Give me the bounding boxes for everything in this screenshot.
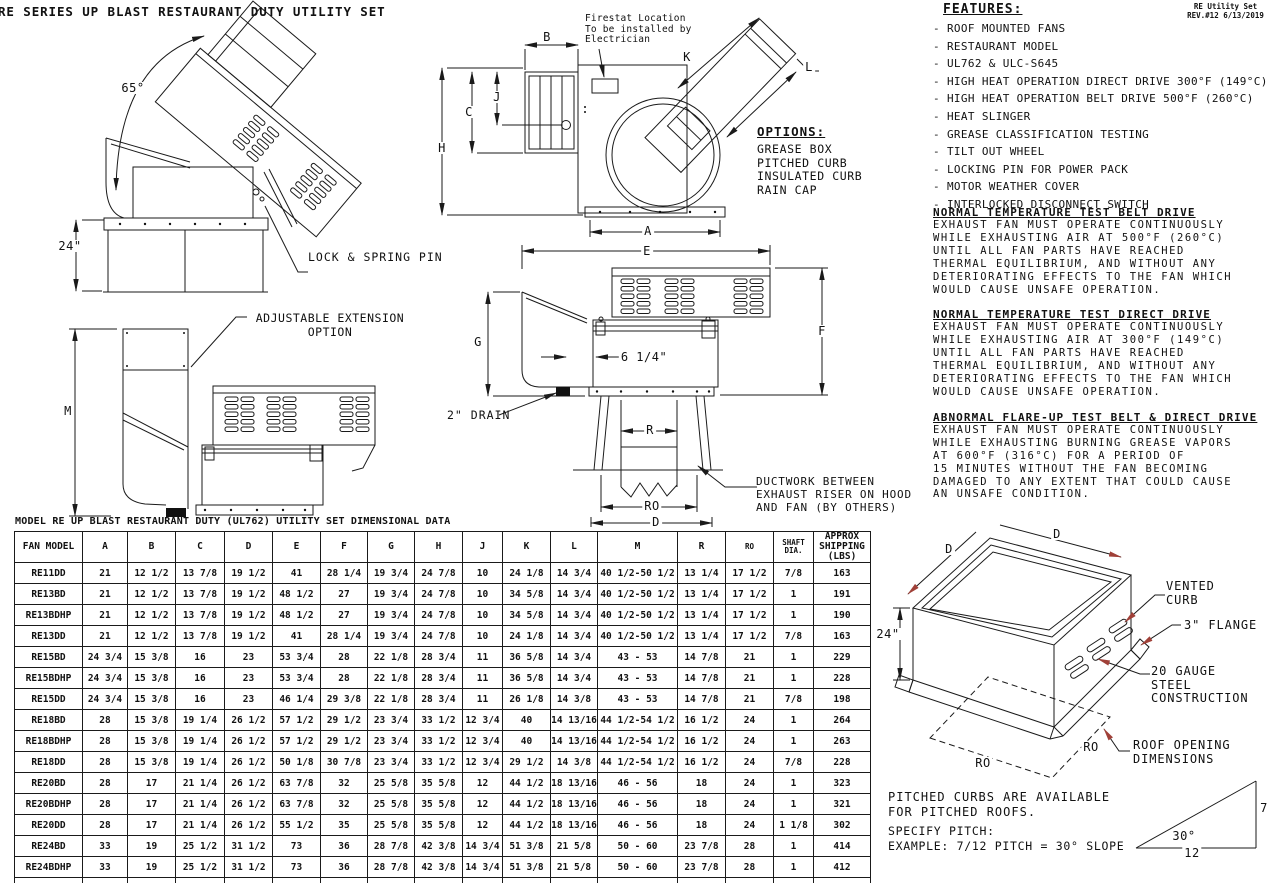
- dimension-cell: 323: [814, 773, 871, 794]
- fan-model-cell: RE18BD: [15, 710, 83, 731]
- dimension-cell: 46 - 56: [598, 773, 678, 794]
- table-row: RE20DD281721 1/426 1/255 1/23525 5/835 5…: [15, 815, 871, 836]
- feature-item: RESTAURANT MODEL: [933, 38, 1280, 56]
- dimension-cell: 13 7/8: [176, 605, 225, 626]
- dimension-cell: 24: [726, 815, 774, 836]
- table-row: RE15DD24 3/415 3/8162346 1/429 3/822 1/8…: [15, 689, 871, 710]
- dimension-cell: 28 7/8: [368, 836, 415, 857]
- column-header: APPROX SHIPPING (LBS): [814, 532, 871, 563]
- dimension-cell: 44 1/2-54 1/2: [598, 752, 678, 773]
- dimension-cell: 24 3/4: [83, 647, 128, 668]
- dim-label-ro: RO: [642, 500, 661, 512]
- dimension-cell: 43 - 53: [598, 668, 678, 689]
- dimension-cell: 389: [814, 878, 871, 883]
- dimension-cell: 14 13/16: [551, 710, 598, 731]
- dimensional-data-table: FAN MODELABCDEFGHJKLMRROSHAFT DIA.APPROX…: [14, 531, 871, 883]
- column-header: M: [598, 532, 678, 563]
- dimension-cell: 14 7/8: [678, 647, 726, 668]
- dimension-cell: 16 1/2: [678, 710, 726, 731]
- dimension-cell: 17 1/2: [726, 563, 774, 584]
- dimension-cell: 22 1/8: [368, 689, 415, 710]
- dimension-cell: 30 7/8: [321, 752, 368, 773]
- dimension-cell: 21 1/4: [176, 773, 225, 794]
- column-header: E: [273, 532, 321, 563]
- dimension-cell: 51 3/8: [503, 878, 551, 883]
- dimension-cell: 16: [176, 647, 225, 668]
- dimension-cell: 229: [814, 647, 871, 668]
- dimension-cell: 55 1/2: [273, 815, 321, 836]
- dimension-cell: 19 3/4: [368, 605, 415, 626]
- dimension-cell: 1: [774, 794, 814, 815]
- fan-model-cell: RE20BD: [15, 773, 83, 794]
- dimension-cell: 41: [273, 626, 321, 647]
- dimension-cell: 17: [128, 794, 176, 815]
- drain-note: 2" DRAIN: [447, 409, 510, 422]
- dimension-cell: 31 1/2: [225, 857, 273, 878]
- feature-item: ROOF MOUNTED FANS: [933, 20, 1280, 38]
- adjustable-extension-note: ADJUSTABLE EXTENSION OPTION: [246, 311, 414, 339]
- dimension-cell: 33: [83, 857, 128, 878]
- table-row: RE13BD2112 1/213 7/819 1/248 1/22719 3/4…: [15, 584, 871, 605]
- feature-item: GREASE CLASSIFICATION TESTING: [933, 126, 1280, 144]
- curb-dim-d1: D: [1051, 528, 1063, 540]
- dimension-cell: 1 3/8: [774, 878, 814, 883]
- dimension-cell: 11: [463, 668, 503, 689]
- dimension-cell: 19 1/2: [225, 605, 273, 626]
- flange-note: 3" FLANGE: [1184, 619, 1257, 633]
- dimension-cell: 24 1/8: [503, 563, 551, 584]
- dimension-cell: 14 3/4: [551, 563, 598, 584]
- dimension-cell: 24 7/8: [415, 626, 463, 647]
- dimension-cell: 23: [225, 689, 273, 710]
- dimension-cell: 19 1/2: [225, 584, 273, 605]
- dimension-cell: 17: [128, 773, 176, 794]
- dimension-cell: 73: [273, 836, 321, 857]
- dimension-cell: 18: [678, 773, 726, 794]
- dimension-cell: 28: [83, 773, 128, 794]
- dimension-cell: 14 3/8: [551, 689, 598, 710]
- dimension-cell: 19 1/4: [176, 710, 225, 731]
- dimension-cell: 14 3/4: [463, 836, 503, 857]
- test-heading: ABNORMAL FLARE-UP TEST BELT & DIRECT DRI…: [933, 411, 1280, 424]
- dimension-cell: 42 3/8: [415, 857, 463, 878]
- dimension-cell: 19 1/2: [225, 563, 273, 584]
- column-header: L: [551, 532, 598, 563]
- test-notes: NORMAL TEMPERATURE TEST BELT DRIVE EXHAU…: [933, 206, 1280, 513]
- drawing-sheet: RE SERIES UP BLAST RESTAURANT DUTY UTILI…: [0, 0, 1280, 883]
- dimension-cell: 63 7/8: [273, 794, 321, 815]
- dimension-cell: 14 3/4: [551, 605, 598, 626]
- dimension-cell: 21: [726, 647, 774, 668]
- dimension-cell: 19 3/4: [368, 626, 415, 647]
- dimension-cell: 51 3/8: [503, 857, 551, 878]
- fan-model-cell: RE13BD: [15, 584, 83, 605]
- dim-label-c: C: [463, 106, 475, 118]
- dimension-cell: 10: [463, 584, 503, 605]
- feature-item: HEAT SLINGER: [933, 108, 1280, 126]
- column-header: J: [463, 532, 503, 563]
- test-body: EXHAUST FAN MUST OPERATE CONTINUOUSLY WH…: [933, 321, 1280, 398]
- dimension-cell: 64: [273, 878, 321, 883]
- dimension-cell: 48 1/2: [273, 584, 321, 605]
- options-heading: OPTIONS:: [757, 124, 825, 139]
- feature-item: TILT OUT WHEEL: [933, 143, 1280, 161]
- dimension-cell: 1: [774, 731, 814, 752]
- test-heading: NORMAL TEMPERATURE TEST BELT DRIVE: [933, 206, 1280, 219]
- dimension-cell: 24 1/8: [503, 626, 551, 647]
- column-header: FAN MODEL: [15, 532, 83, 563]
- revision-note: RE Utility Set REV.#12 6/13/2019: [1173, 2, 1278, 20]
- dimension-cell: 321: [814, 794, 871, 815]
- dimension-cell: 50 1/8: [273, 752, 321, 773]
- dimension-cell: 17: [128, 815, 176, 836]
- dimension-cell: 46 1/4: [273, 689, 321, 710]
- dimension-cell: 57 1/2: [273, 731, 321, 752]
- dimension-cell: 28 7/8: [368, 857, 415, 878]
- dimension-cell: 302: [814, 815, 871, 836]
- dimension-cell: 40: [503, 710, 551, 731]
- dimension-cell: 228: [814, 752, 871, 773]
- dimension-cell: 12 3/4: [463, 752, 503, 773]
- table-row: RE18DD2815 3/819 1/426 1/250 1/830 7/823…: [15, 752, 871, 773]
- dimension-cell: 31 1/2: [225, 836, 273, 857]
- dimension-cell: 14 7/8: [678, 689, 726, 710]
- feature-item: LOCKING PIN FOR POWER PACK: [933, 161, 1280, 179]
- dim-label-j: J: [491, 91, 503, 103]
- dimension-cell: 16: [176, 668, 225, 689]
- dimension-cell: 41: [273, 563, 321, 584]
- dimension-cell: 1: [774, 857, 814, 878]
- dimension-cell: 12 1/2: [128, 605, 176, 626]
- fan-model-cell: RE24BDHP: [15, 857, 83, 878]
- table-row: RE20BD281721 1/426 1/263 7/83225 5/835 5…: [15, 773, 871, 794]
- dimension-cell: 21 1/4: [176, 794, 225, 815]
- dimension-cell: 50 - 60: [598, 878, 678, 883]
- dimension-cell: 23 7/8: [678, 836, 726, 857]
- table-row: RE24DD331925 1/231 1/2643828 7/842 3/814…: [15, 878, 871, 883]
- dimension-cell: 15 3/8: [128, 731, 176, 752]
- dimension-cell: 21: [83, 605, 128, 626]
- dimension-cell: 53 3/4: [273, 647, 321, 668]
- pitch-rise-label: 7: [1258, 802, 1270, 814]
- dim-label-r: R: [644, 424, 656, 436]
- vented-curb-note: VENTED CURB: [1166, 580, 1215, 607]
- dimension-cell: 1: [774, 605, 814, 626]
- dimension-cell: 21 5/8: [551, 857, 598, 878]
- dimension-cell: 14 3/4: [551, 584, 598, 605]
- dimension-cell: 23: [225, 668, 273, 689]
- dimension-cell: 12 1/2: [128, 563, 176, 584]
- dimension-cell: 7/8: [774, 626, 814, 647]
- dimension-cell: 28 3/4: [415, 689, 463, 710]
- dimension-cell: 33: [83, 878, 128, 883]
- feature-item: UL762 & ULC-S645: [933, 55, 1280, 73]
- dimension-cell: 25 1/2: [176, 878, 225, 883]
- dimension-cell: 7/8: [774, 563, 814, 584]
- dimension-cell: 24 3/4: [83, 689, 128, 710]
- column-header: A: [83, 532, 128, 563]
- dimension-cell: 28: [726, 878, 774, 883]
- dimension-cell: 24: [726, 710, 774, 731]
- fan-model-cell: RE20BDHP: [15, 794, 83, 815]
- table-row: RE15BDHP24 3/415 3/8162353 3/42822 1/828…: [15, 668, 871, 689]
- option-item: PITCHED CURB: [757, 157, 862, 171]
- curb-ro1: RO: [1081, 741, 1100, 753]
- dimension-cell: 10: [463, 563, 503, 584]
- dimension-cell: 13 7/8: [176, 563, 225, 584]
- column-header: G: [368, 532, 415, 563]
- dimension-cell: 44 1/2: [503, 815, 551, 836]
- dimension-cell: 28: [83, 710, 128, 731]
- dimension-cell: 35 5/8: [415, 815, 463, 836]
- dimension-cell: 19: [128, 878, 176, 883]
- dimension-cell: 21: [726, 689, 774, 710]
- dimension-cell: 10: [463, 626, 503, 647]
- dimension-cell: 198: [814, 689, 871, 710]
- test-block: NORMAL TEMPERATURE TEST DIRECT DRIVE EXH…: [933, 308, 1280, 398]
- dimension-cell: 14 3/4: [463, 878, 503, 883]
- dimension-cell: 1: [774, 836, 814, 857]
- dimension-cell: 36: [321, 857, 368, 878]
- dimension-cell: 16 1/2: [678, 731, 726, 752]
- dimension-cell: 44 1/2-54 1/2: [598, 710, 678, 731]
- dimension-cell: 26 1/2: [225, 773, 273, 794]
- dimension-cell: 16: [176, 689, 225, 710]
- dimension-cell: 25 5/8: [368, 815, 415, 836]
- fan-model-cell: RE13DD: [15, 626, 83, 647]
- dimension-cell: 18 13/16: [551, 773, 598, 794]
- dimension-cell: 24 7/8: [415, 563, 463, 584]
- dimension-cell: 35: [321, 815, 368, 836]
- dimension-cell: 23 3/4: [368, 731, 415, 752]
- dimension-cell: 13 7/8: [176, 584, 225, 605]
- dimension-cell: 28 3/4: [415, 668, 463, 689]
- dimension-cell: 15 3/8: [128, 647, 176, 668]
- test-body: EXHAUST FAN MUST OPERATE CONTINUOUSLY WH…: [933, 219, 1280, 296]
- dimension-cell: 32: [321, 794, 368, 815]
- dimension-cell: 46 - 56: [598, 794, 678, 815]
- curb-ro2: RO: [973, 757, 992, 769]
- dimension-cell: 28: [83, 794, 128, 815]
- dimension-cell: 24: [726, 731, 774, 752]
- dimension-cell: 42 3/8: [415, 836, 463, 857]
- test-block: ABNORMAL FLARE-UP TEST BELT & DIRECT DRI…: [933, 411, 1280, 501]
- test-heading: NORMAL TEMPERATURE TEST DIRECT DRIVE: [933, 308, 1280, 321]
- column-header: SHAFT DIA.: [774, 532, 814, 563]
- table-row: RE18BDHP2815 3/819 1/426 1/257 1/229 1/2…: [15, 731, 871, 752]
- dimension-cell: 12 1/2: [128, 584, 176, 605]
- dimension-cell: 14 3/4: [463, 857, 503, 878]
- table-row: RE11DD2112 1/213 7/819 1/24128 1/419 3/4…: [15, 563, 871, 584]
- dimension-cell: 27: [321, 584, 368, 605]
- dimension-cell: 12 1/2: [128, 626, 176, 647]
- fan-model-cell: RE24BD: [15, 836, 83, 857]
- dimension-cell: 1: [774, 668, 814, 689]
- table-row: RE24BDHP331925 1/231 1/2733628 7/842 3/8…: [15, 857, 871, 878]
- dimension-cell: 13 1/4: [678, 626, 726, 647]
- dimension-cell: 26 1/8: [503, 689, 551, 710]
- dimension-cell: 21: [83, 584, 128, 605]
- column-header: B: [128, 532, 176, 563]
- dimension-cell: 19 3/4: [368, 563, 415, 584]
- fan-model-cell: RE24DD: [15, 878, 83, 883]
- dimension-cell: 228: [814, 668, 871, 689]
- table-title: MODEL RE UP BLAST RESTAURANT DUTY (UL762…: [15, 516, 450, 527]
- dimension-cell: 14 3/8: [551, 752, 598, 773]
- option-item: GREASE BOX: [757, 143, 862, 157]
- dim-label-l: L: [803, 61, 815, 73]
- dimension-cell: 21 5/8: [551, 878, 598, 883]
- fan-model-cell: RE20DD: [15, 815, 83, 836]
- dimension-cell: 14 3/4: [551, 647, 598, 668]
- dimension-cell: 29 3/8: [321, 689, 368, 710]
- dimension-cell: 29 1/2: [321, 731, 368, 752]
- dimension-cell: 263: [814, 731, 871, 752]
- dimension-cell: 1: [774, 710, 814, 731]
- dimension-cell: 11: [463, 689, 503, 710]
- fan-model-cell: RE15BDHP: [15, 668, 83, 689]
- column-header: D: [225, 532, 273, 563]
- dimension-cell: 24: [726, 773, 774, 794]
- fan-model-cell: RE15BD: [15, 647, 83, 668]
- dimension-cell: 36: [321, 836, 368, 857]
- dimension-cell: 29 1/2: [321, 710, 368, 731]
- dim-label-d: D: [650, 516, 662, 528]
- dimension-cell: 163: [814, 626, 871, 647]
- fan-model-cell: RE11DD: [15, 563, 83, 584]
- dimension-cell: 34 5/8: [503, 605, 551, 626]
- table-row: RE13BDHP2112 1/213 7/819 1/248 1/22719 3…: [15, 605, 871, 626]
- dimension-cell: 13 1/4: [678, 605, 726, 626]
- dimension-cell: 38: [321, 878, 368, 883]
- fan-model-cell: RE18BDHP: [15, 731, 83, 752]
- column-header: RO: [726, 532, 774, 563]
- dimension-cell: 53 3/4: [273, 668, 321, 689]
- dimension-cell: 31 1/2: [225, 878, 273, 883]
- lock-spring-pin-note: LOCK & SPRING PIN: [308, 251, 443, 264]
- page-title: RE SERIES UP BLAST RESTAURANT DUTY UTILI…: [0, 4, 386, 19]
- option-item: INSULATED CURB: [757, 170, 862, 184]
- dimension-cell: 25 1/2: [176, 836, 225, 857]
- table-row: RE13DD2112 1/213 7/819 1/24128 1/419 3/4…: [15, 626, 871, 647]
- dimension-cell: 35 5/8: [415, 773, 463, 794]
- dimension-cell: 46 - 56: [598, 815, 678, 836]
- dimension-cell: 63 7/8: [273, 773, 321, 794]
- dimension-cell: 15 3/8: [128, 689, 176, 710]
- dim-label-k: K: [681, 51, 693, 63]
- dimension-cell: 40 1/2-50 1/2: [598, 563, 678, 584]
- dimension-cell: 28: [83, 731, 128, 752]
- dim-label-m: M: [62, 405, 74, 417]
- dim-label-a: A: [642, 225, 654, 237]
- table-header-row: FAN MODELABCDEFGHJKLMRROSHAFT DIA.APPROX…: [15, 532, 871, 563]
- dimension-cell: 28 1/4: [321, 563, 368, 584]
- fan-model-cell: RE18DD: [15, 752, 83, 773]
- table-row: RE24BD331925 1/231 1/2733628 7/842 3/814…: [15, 836, 871, 857]
- curb-dim-d2: D: [943, 543, 955, 555]
- dimension-cell: 22 1/8: [368, 647, 415, 668]
- dimension-cell: 21 5/8: [551, 836, 598, 857]
- dimension-cell: 163: [814, 563, 871, 584]
- dimension-cell: 19: [128, 857, 176, 878]
- dimension-cell: 1: [774, 647, 814, 668]
- dim-label-e: E: [641, 245, 653, 257]
- dimension-cell: 15 3/8: [128, 668, 176, 689]
- dimension-cell: 43 - 53: [598, 689, 678, 710]
- dimension-cell: 21: [83, 563, 128, 584]
- dimension-cell: 24 7/8: [415, 605, 463, 626]
- dimension-cell: 33 1/2: [415, 710, 463, 731]
- dimension-cell: 15 3/8: [128, 710, 176, 731]
- dim-label-b: B: [541, 31, 553, 43]
- dimension-cell: 23 7/8: [678, 857, 726, 878]
- dimension-cell: 28: [321, 668, 368, 689]
- dimension-cell: 1: [774, 584, 814, 605]
- dimension-cell: 10: [463, 605, 503, 626]
- dimension-cell: 21: [726, 668, 774, 689]
- features-list: ROOF MOUNTED FANSRESTAURANT MODELUL762 &…: [933, 20, 1280, 214]
- dimension-cell: 23 3/4: [368, 752, 415, 773]
- dimension-cell: 12: [463, 815, 503, 836]
- dimension-cell: 35 5/8: [415, 794, 463, 815]
- dimension-cell: 18: [678, 794, 726, 815]
- dimension-cell: 33 1/2: [415, 731, 463, 752]
- dimension-cell: 24 3/4: [83, 668, 128, 689]
- dimension-cell: 19 1/4: [176, 752, 225, 773]
- dimension-cell: 48 1/2: [273, 605, 321, 626]
- dimension-cell: 28 3/4: [415, 647, 463, 668]
- curb-height-label: 24": [56, 240, 83, 252]
- dimension-cell: 19: [128, 836, 176, 857]
- dimension-cell: 12: [463, 773, 503, 794]
- features-heading: FEATURES:: [943, 2, 1022, 17]
- dimension-cell: 26 1/2: [225, 815, 273, 836]
- dimension-cell: 42 3/8: [415, 878, 463, 883]
- dimension-cell: 17 1/2: [726, 584, 774, 605]
- dimension-cell: 28 1/4: [321, 626, 368, 647]
- fan-model-cell: RE13BDHP: [15, 605, 83, 626]
- table-row: RE18BD2815 3/819 1/426 1/257 1/229 1/223…: [15, 710, 871, 731]
- gauge-note: 20 GAUGE STEEL CONSTRUCTION: [1151, 665, 1249, 706]
- dimension-cell: 19 1/2: [225, 626, 273, 647]
- dimension-cell: 7/8: [774, 752, 814, 773]
- specify-pitch-note: SPECIFY PITCH: EXAMPLE: 7/12 PITCH = 30°…: [888, 824, 1124, 854]
- dimension-cell: 13 1/4: [678, 584, 726, 605]
- tilt-angle-label: 65°: [119, 82, 146, 94]
- pitch-triangle-drawing: [1128, 775, 1280, 870]
- pitched-curb-note: PITCHED CURBS ARE AVAILABLE FOR PITCHED …: [888, 790, 1110, 819]
- dimension-cell: 191: [814, 584, 871, 605]
- feature-item: HIGH HEAT OPERATION DIRECT DRIVE 300°F (…: [933, 73, 1280, 91]
- dimension-cell: 28 7/8: [368, 878, 415, 883]
- dimension-cell: 26 1/2: [225, 710, 273, 731]
- dimension-cell: 12 3/4: [463, 731, 503, 752]
- dimension-cell: 40 1/2-50 1/2: [598, 584, 678, 605]
- dim-table-body: RE11DD2112 1/213 7/819 1/24128 1/419 3/4…: [15, 563, 871, 883]
- dimension-cell: 412: [814, 857, 871, 878]
- dimension-cell: 73: [273, 857, 321, 878]
- dimension-cell: 23 7/8: [678, 878, 726, 883]
- dimension-cell: 1: [774, 773, 814, 794]
- dimension-cell: 28: [83, 815, 128, 836]
- pitch-angle-label: 30°: [1170, 830, 1197, 842]
- ductwork-note: DUCTWORK BETWEEN EXHAUST RISER ON HOOD A…: [756, 476, 912, 514]
- dimension-cell: 17 1/2: [726, 605, 774, 626]
- dimension-cell: 26 1/2: [225, 731, 273, 752]
- dimension-cell: 1 1/8: [774, 815, 814, 836]
- dimension-cell: 40 1/2-50 1/2: [598, 626, 678, 647]
- dimension-cell: 414: [814, 836, 871, 857]
